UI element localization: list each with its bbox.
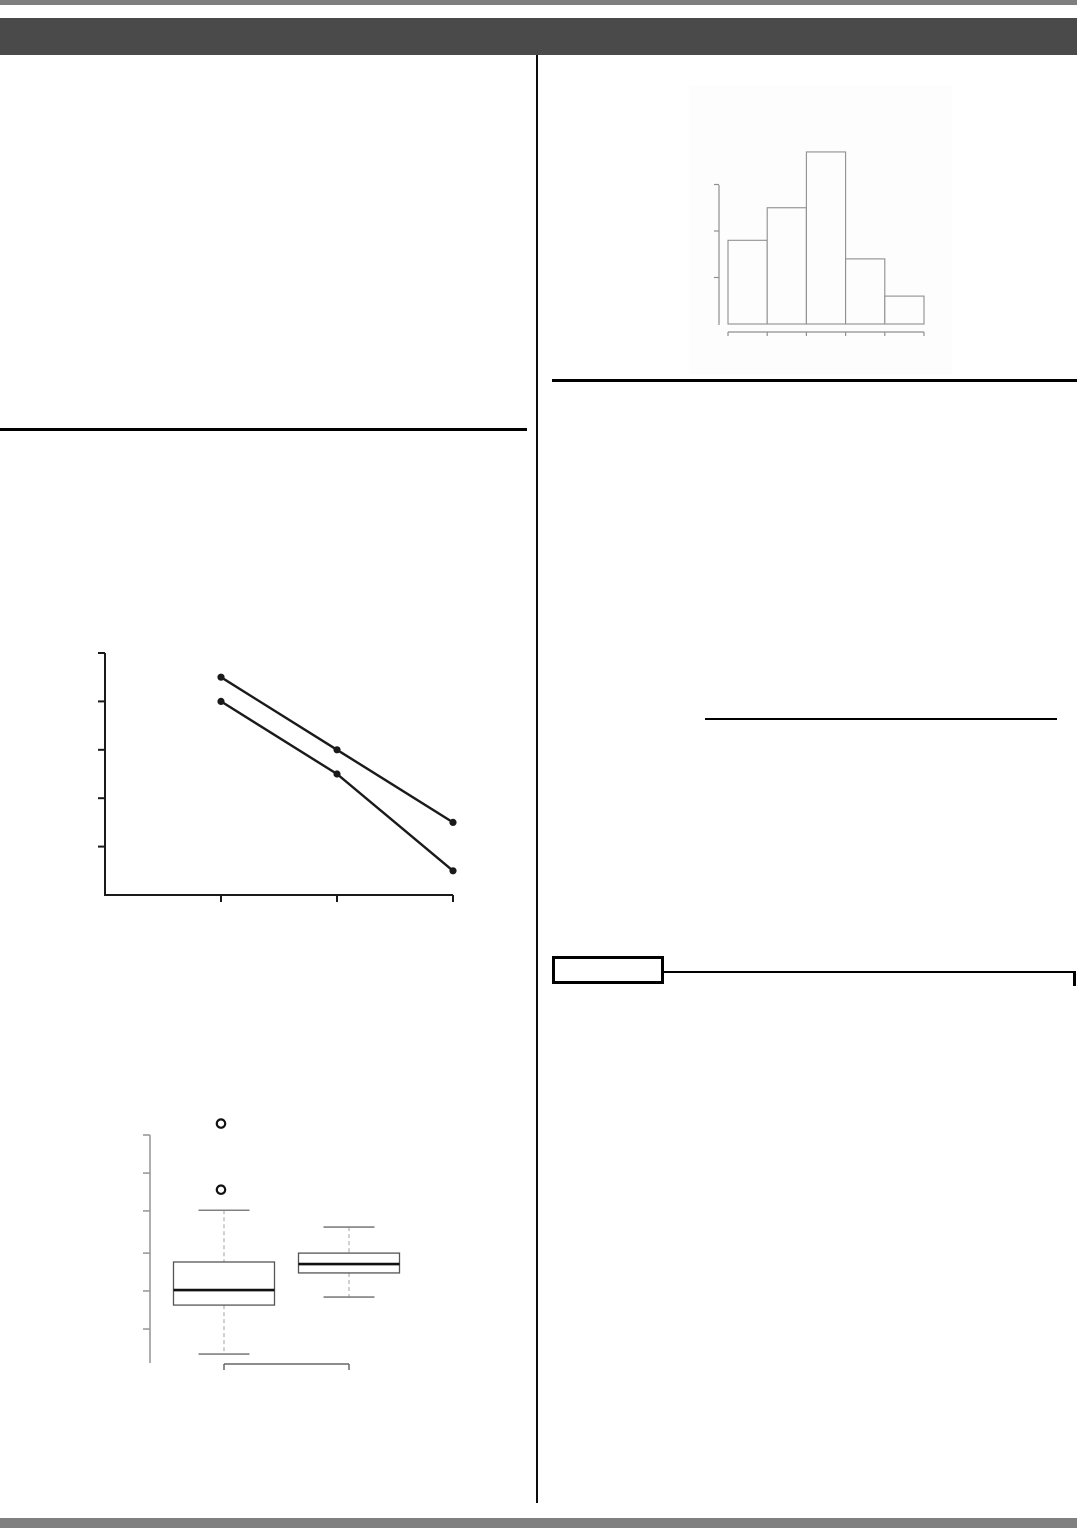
outlier-point [217,1186,225,1194]
top-edge-strip [0,0,1077,5]
data-line-series-2 [221,701,453,870]
data-point-series-2 [333,770,340,777]
empty-box-outline [552,956,664,984]
box-group-1 [174,1262,275,1305]
right-column-underline [705,718,1057,720]
data-point-series-2 [217,698,224,705]
boxplot-chart [140,1110,412,1376]
line-chart [90,640,470,910]
histogram-figure [689,85,952,375]
header-banner [0,18,1077,55]
data-point-series-1 [449,819,456,826]
hist-bar [767,208,806,324]
document-page [0,0,1077,1528]
data-point-series-1 [333,746,340,753]
connector-line [663,971,1075,973]
connector-end-tick [1073,971,1076,986]
histogram-chart [689,85,952,375]
hist-bar [806,152,845,324]
left-column-rule [0,428,527,431]
line-chart-figure [90,640,470,910]
hist-bar [846,259,885,324]
column-divider [536,55,538,1503]
outlier-point [217,1119,225,1127]
data-point-series-2 [449,867,456,874]
data-point-series-1 [217,674,224,681]
boxplot-figure [140,1110,412,1376]
hist-bar [885,296,924,324]
bottom-edge-bar [0,1518,1077,1528]
hist-bar [728,240,767,324]
right-column-rule [552,379,1077,382]
